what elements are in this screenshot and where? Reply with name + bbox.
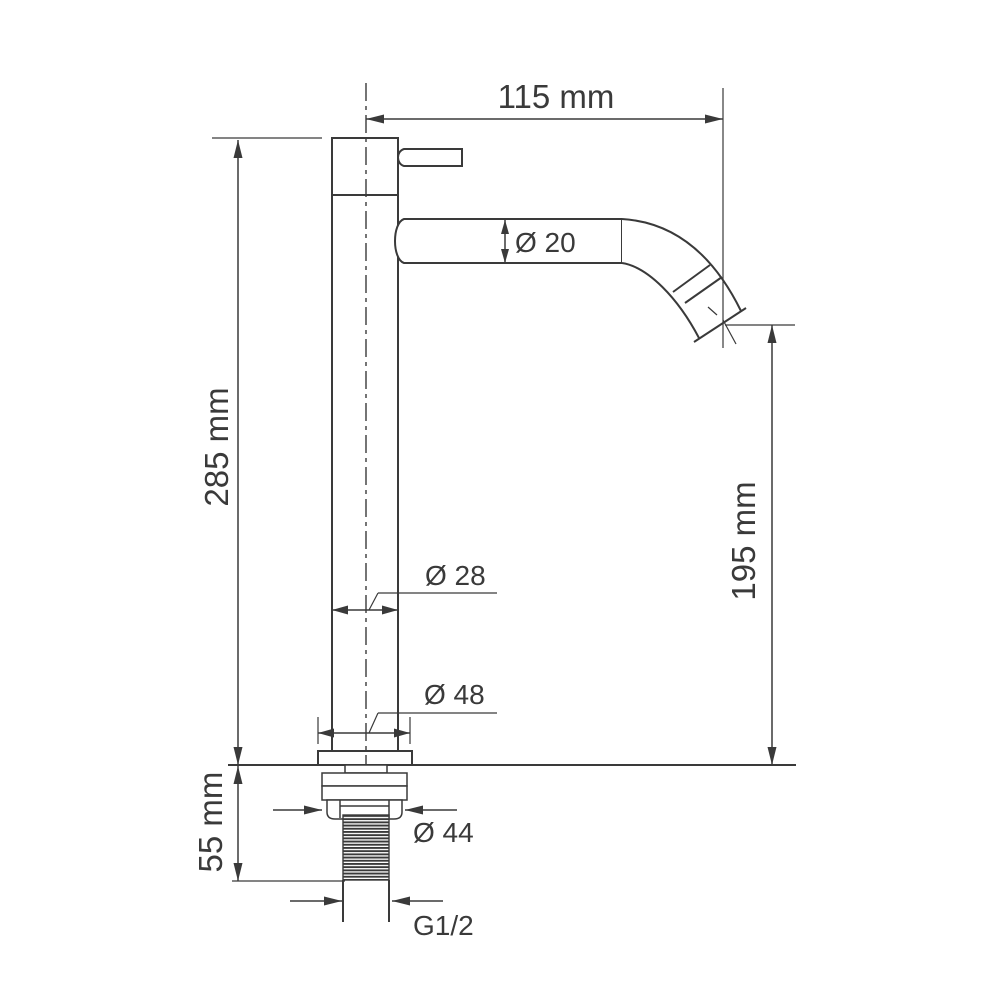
arrowhead-left (304, 806, 322, 815)
dimension-spout-outlet-height: 195 mm (725, 325, 795, 765)
arrowhead-bottom (768, 747, 777, 765)
dimension-spout-reach: 115 mm (366, 78, 723, 348)
dim-body-diameter-label: Ø 28 (425, 560, 486, 591)
dim-total-height-label: 285 mm (198, 387, 235, 506)
locknut-band-lower (322, 786, 407, 800)
dimension-inlet-thread: G1/2 (290, 897, 474, 942)
dim-locknut-diameter-label: Ø 44 (413, 817, 474, 848)
arrowhead-bottom (234, 747, 243, 765)
outlet-axis-tick (723, 320, 736, 344)
dim-inlet-thread-label: G1/2 (413, 910, 474, 941)
arrowhead-right (705, 115, 723, 124)
arrowhead-right (394, 729, 410, 738)
arrowhead-left (366, 115, 384, 124)
threaded-shank (343, 815, 389, 880)
arrowhead-bottom (234, 863, 243, 881)
locknut-band-upper (322, 773, 407, 786)
arrowhead-left (324, 897, 342, 906)
dimension-total-height: 285 mm (198, 138, 322, 765)
dim-under-counter-depth-label: 55 mm (192, 772, 229, 873)
drawing-canvas: 115 mm 285 mm 195 mm 55 mm Ø 20 (0, 0, 1000, 1000)
faucet-body-column (332, 138, 398, 751)
lever-handle (398, 149, 462, 166)
arrowhead-right (405, 806, 423, 815)
faucet-outline (228, 138, 796, 922)
dim-spout-tube-diameter-label: Ø 20 (515, 227, 576, 258)
dim-base-diameter-label: Ø 48 (424, 679, 485, 710)
arrowhead-top (234, 766, 243, 784)
gasket-stem (345, 765, 387, 773)
arrowhead-top (768, 325, 777, 343)
technical-drawing: 115 mm 285 mm 195 mm 55 mm Ø 20 (0, 0, 1000, 1000)
base-flange (318, 751, 412, 765)
arrowhead-left (318, 729, 334, 738)
spout-tube (395, 219, 622, 263)
dim-spout-reach-label: 115 mm (498, 78, 615, 115)
arrowhead-right (392, 897, 410, 906)
arrowhead-top (234, 140, 243, 158)
dim-spout-outlet-height-label: 195 mm (725, 481, 762, 600)
